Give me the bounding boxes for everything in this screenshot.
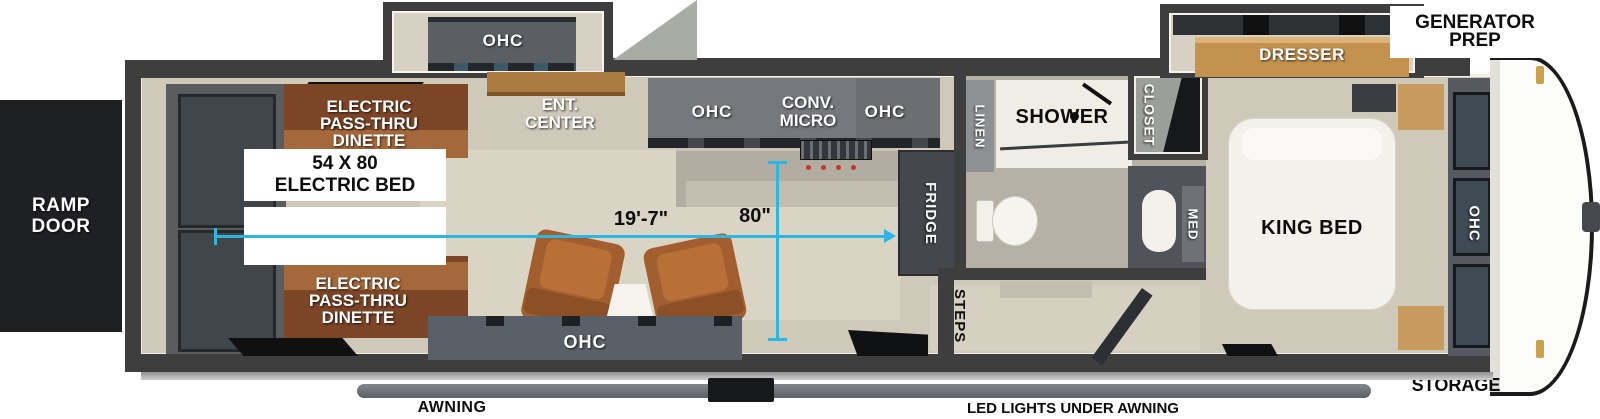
- ramp-door-label: RAMP DOOR: [32, 195, 91, 237]
- slide-ohc-glass: [428, 63, 576, 71]
- dim-width-cap-bottom: [768, 338, 787, 341]
- dim-width-line: [776, 163, 779, 340]
- front-ohc-label-wrap: OHC: [1464, 194, 1484, 252]
- wall-bottom: [125, 354, 1497, 372]
- sofa-ohc: OHC: [428, 316, 742, 360]
- slide-ent-center: OHC: [383, 2, 613, 78]
- dresser-ohc-strip: [1173, 15, 1411, 35]
- steps-label-wrap: STEPS: [946, 284, 972, 348]
- ramp-door: RAMP DOOR: [0, 100, 122, 332]
- slide-bedroom-interior: DRESSER: [1169, 13, 1415, 73]
- king-bed-label: KING BED: [1252, 216, 1372, 240]
- dim-width-label: 80": [732, 204, 778, 228]
- dim-length-arrow-icon: [884, 229, 896, 243]
- electric-bed-label: 54 X 80 ELECTRIC BED: [275, 153, 415, 197]
- conv-micro-label: CONV. MICRO: [762, 92, 854, 132]
- dim-length-line: [216, 235, 888, 238]
- shower-arm-icon: [1082, 83, 1112, 106]
- nightstand-bottom: [1398, 306, 1444, 350]
- bedroom-window-bottom: [1222, 344, 1278, 356]
- roof-wedge: [613, 0, 697, 60]
- kitchen-ohc-right-label: OHC: [852, 100, 918, 122]
- dim-width-cap-top: [768, 161, 787, 164]
- bath-wall-left: [954, 76, 966, 280]
- steps-label: STEPS: [952, 289, 966, 343]
- dinette-bottom-label: ELECTRIC PASS-THRU DINETTE: [277, 273, 439, 327]
- med-label: MED: [1187, 208, 1200, 240]
- led-lights-label: LED LIGHTS UNDER AWNING: [964, 400, 1182, 418]
- wall-top-rear: [125, 60, 395, 78]
- dresser-label: DRESSER: [1215, 41, 1389, 67]
- clearance-light-top: [1536, 66, 1544, 84]
- clearance-light-bottom: [1536, 340, 1544, 358]
- entry-threshold: [1000, 281, 1092, 298]
- wall-rear-left: [125, 60, 141, 372]
- king-bed: [1228, 118, 1396, 310]
- med-cabinet: MED: [1182, 186, 1204, 262]
- dim-length-label: 19'-7": [600, 207, 682, 231]
- linen-label: LINEN: [974, 104, 987, 148]
- bed-cabinet-top: [1352, 84, 1396, 112]
- shower-glass: [1000, 141, 1128, 151]
- awning-bar: [357, 384, 1371, 398]
- generator-prep-label: GENERATOR PREP: [1415, 14, 1535, 50]
- generator-prep-box: GENERATOR PREP: [1390, 6, 1560, 58]
- awning-label: AWNING: [412, 399, 492, 417]
- kitchen-ohc-left-label: OHC: [672, 100, 752, 122]
- nightstand-top: [1398, 84, 1444, 130]
- cooktop-knobs: [806, 164, 866, 171]
- ent-center-shelf: [487, 72, 625, 96]
- awning-support: [708, 378, 774, 402]
- ent-center-label: ENT. CENTER: [505, 94, 615, 134]
- slide-ent-interior: OHC: [392, 11, 604, 73]
- bath-wall-bottom: [954, 268, 1206, 280]
- front-ohc-pane-3: [1453, 264, 1491, 348]
- floorplan-canvas: RAMP DOOR ELECTRIC PASS-THRU DINETTE ELE…: [0, 0, 1600, 419]
- kitchen-ohc-underside: [648, 138, 940, 148]
- vanity-sink: [1142, 190, 1176, 252]
- dim-length-cap-left: [214, 228, 217, 245]
- linen-cabinet: LINEN: [966, 80, 994, 172]
- closet-label: CLOSET: [1142, 84, 1156, 147]
- dinette-top-label: ELECTRIC PASS-THRU DINETTE: [288, 96, 450, 150]
- toilet-bowl: [992, 196, 1038, 246]
- ceiling-shade-bottom: [228, 338, 358, 356]
- sofa-ohc-slits: [428, 316, 742, 326]
- front-cap-shadow: [1490, 60, 1500, 392]
- front-ohc-label: OHC: [1467, 205, 1482, 241]
- kitchen-counter-ledge: [686, 181, 900, 207]
- bed-pillows: [1242, 128, 1382, 160]
- fridge: FRIDGE: [898, 150, 962, 276]
- cooktop: [800, 140, 872, 160]
- fridge-label: FRIDGE: [923, 182, 938, 245]
- sofa-ohc-label: OHC: [428, 328, 742, 356]
- shower-label: SHOWER: [1014, 106, 1110, 128]
- body-shadow-strip: [141, 372, 1493, 380]
- slide-bedroom: DRESSER: [1160, 4, 1424, 78]
- electric-bed-box: 54 X 80 ELECTRIC BED: [244, 149, 446, 201]
- front-jack-knob: [1582, 202, 1600, 232]
- closet-label-wrap: CLOSET: [1136, 76, 1162, 154]
- slide-ohc-label: OHC: [458, 27, 548, 53]
- front-ohc-pane-1: [1453, 92, 1491, 170]
